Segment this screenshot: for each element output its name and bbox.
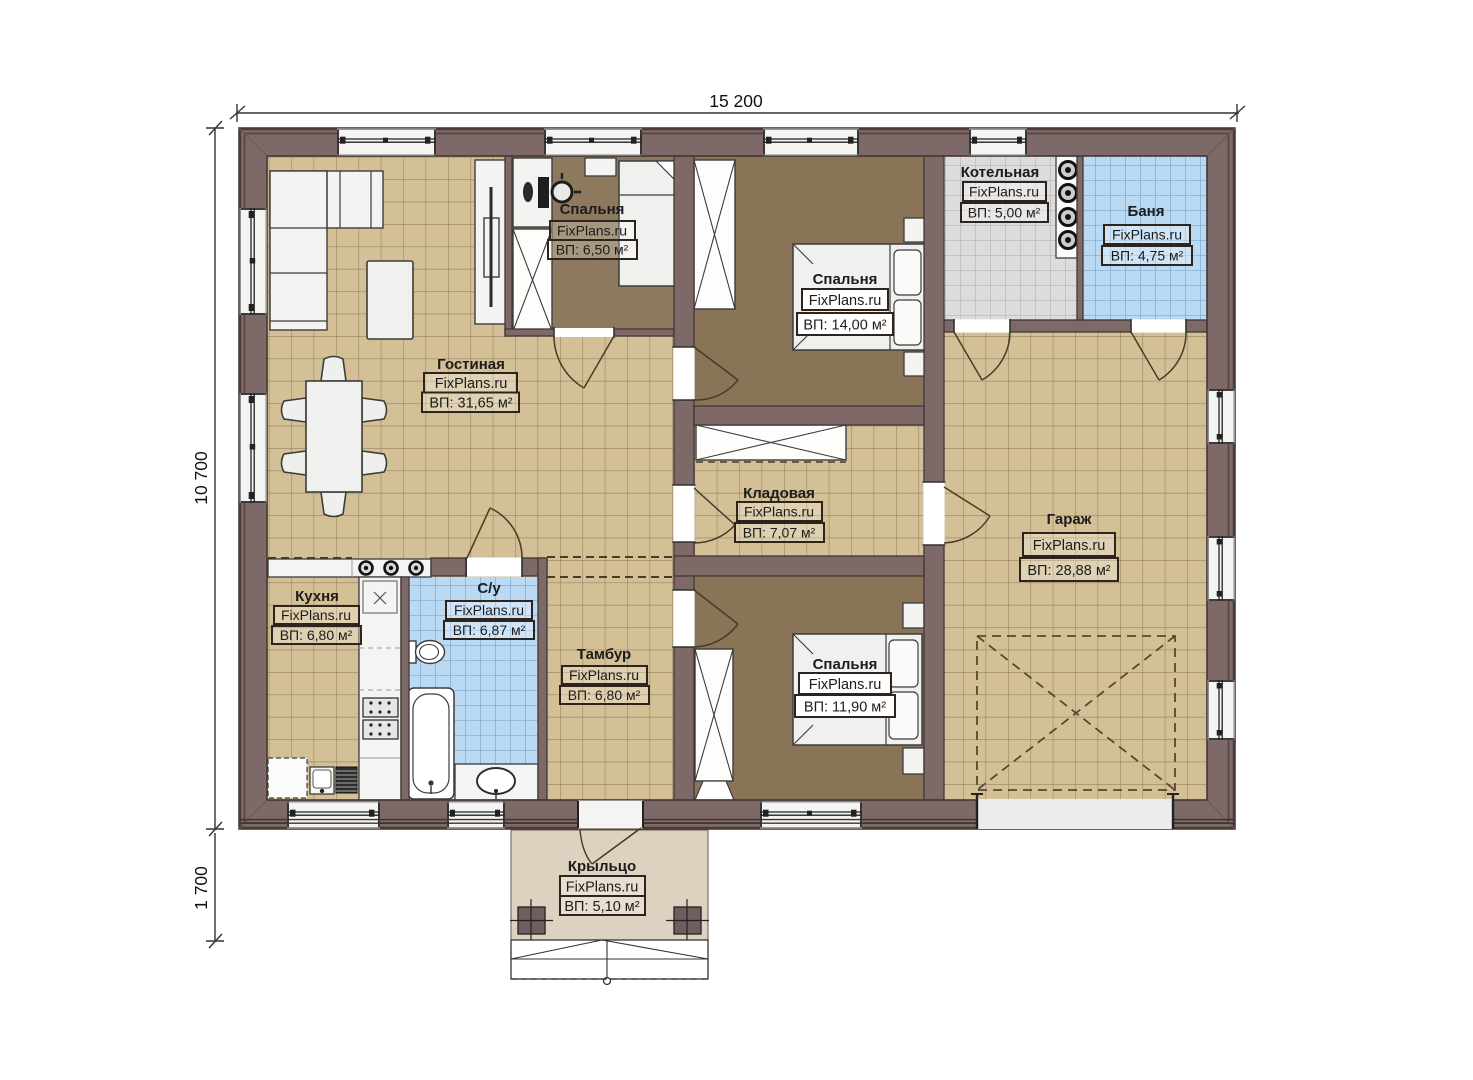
svg-text:ВП: 14,00 м²: ВП: 14,00 м² xyxy=(803,318,886,334)
svg-text:ВП: 11,90 м²: ВП: 11,90 м² xyxy=(804,700,886,716)
svg-text:ВП: 7,07 м²: ВП: 7,07 м² xyxy=(743,525,816,541)
svg-text:Кухня: Кухня xyxy=(295,588,339,605)
svg-text:ВП: 4,75 м²: ВП: 4,75 м² xyxy=(1111,248,1184,264)
svg-text:FixPlans.ru: FixPlans.ru xyxy=(1112,227,1182,243)
svg-text:Гараж: Гараж xyxy=(1047,511,1092,528)
svg-text:Кладовая: Кладовая xyxy=(743,485,815,502)
svg-text:10 700: 10 700 xyxy=(191,451,211,505)
svg-text:FixPlans.ru: FixPlans.ru xyxy=(969,184,1039,200)
svg-text:ВП: 6,87 м²: ВП: 6,87 м² xyxy=(453,622,526,638)
svg-text:FixPlans.ru: FixPlans.ru xyxy=(809,677,882,693)
svg-text:С/у: С/у xyxy=(477,580,501,597)
svg-text:Баня: Баня xyxy=(1128,203,1165,220)
svg-text:Котельная: Котельная xyxy=(961,164,1040,181)
svg-text:ВП: 5,00 м²: ВП: 5,00 м² xyxy=(968,205,1041,221)
svg-text:Спальня: Спальня xyxy=(813,271,878,288)
svg-text:ВП: 5,10 м²: ВП: 5,10 м² xyxy=(564,899,639,915)
svg-text:ВП: 31,65 м²: ВП: 31,65 м² xyxy=(429,396,512,412)
svg-text:15 200: 15 200 xyxy=(709,91,763,111)
svg-text:ВП: 6,50 м²: ВП: 6,50 м² xyxy=(556,242,629,258)
svg-text:FixPlans.ru: FixPlans.ru xyxy=(569,667,639,683)
svg-text:FixPlans.ru: FixPlans.ru xyxy=(566,880,639,896)
svg-text:FixPlans.ru: FixPlans.ru xyxy=(454,602,524,618)
svg-text:Спальня: Спальня xyxy=(813,656,878,673)
svg-text:Спальня: Спальня xyxy=(560,201,625,218)
svg-text:FixPlans.ru: FixPlans.ru xyxy=(1033,538,1106,554)
svg-text:Тамбур: Тамбур xyxy=(577,646,631,663)
svg-text:ВП: 28,88 м²: ВП: 28,88 м² xyxy=(1027,563,1110,579)
svg-text:FixPlans.ru: FixPlans.ru xyxy=(281,607,351,623)
svg-text:FixPlans.ru: FixPlans.ru xyxy=(809,293,882,309)
svg-text:FixPlans.ru: FixPlans.ru xyxy=(557,223,627,239)
svg-text:FixPlans.ru: FixPlans.ru xyxy=(435,376,508,392)
svg-text:1 700: 1 700 xyxy=(191,866,211,910)
svg-text:FixPlans.ru: FixPlans.ru xyxy=(744,504,814,520)
svg-text:ВП: 6,80 м²: ВП: 6,80 м² xyxy=(280,627,353,643)
svg-text:ВП: 6,80 м²: ВП: 6,80 м² xyxy=(568,687,641,703)
svg-text:Крыльцо: Крыльцо xyxy=(568,858,636,875)
svg-text:Гостиная: Гостиная xyxy=(437,356,505,373)
